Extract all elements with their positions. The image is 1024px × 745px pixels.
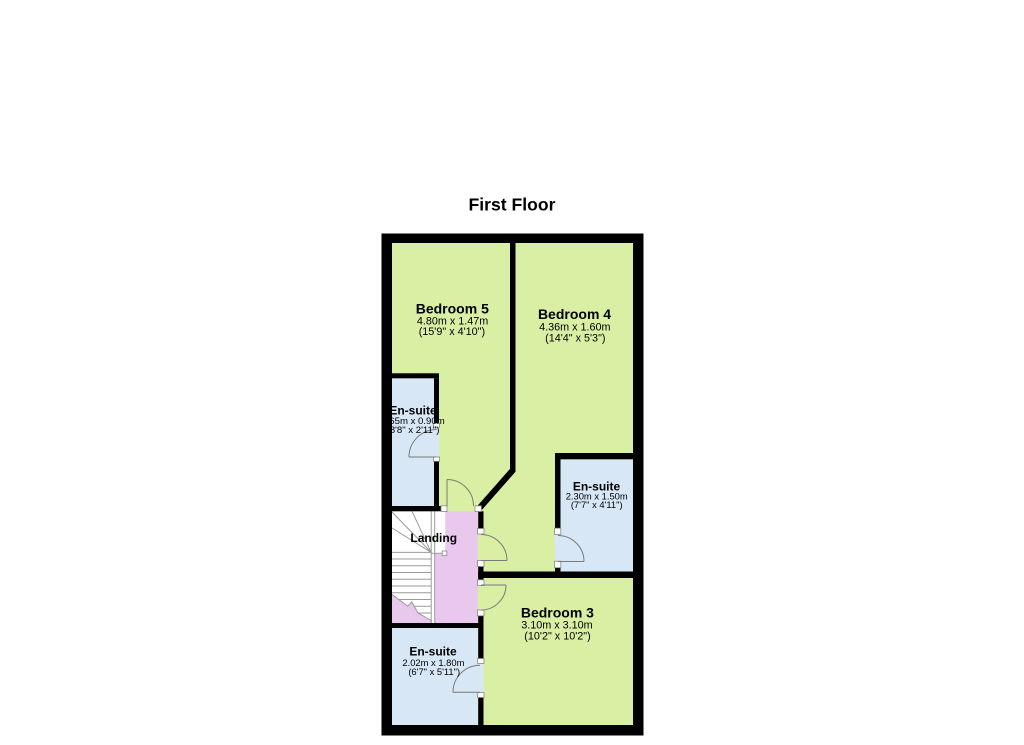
svg-text:(14'4" x 5'3"): (14'4" x 5'3") [545, 333, 605, 345]
svg-text:(15'9" x 4'10"): (15'9" x 4'10") [419, 326, 485, 338]
svg-text:(10'2" x 10'2"): (10'2" x 10'2") [524, 631, 590, 643]
svg-text:Landing: Landing [410, 531, 457, 545]
svg-text:4.36m x 1.60m: 4.36m x 1.60m [539, 321, 610, 333]
svg-text:First Floor: First Floor [469, 194, 556, 214]
svg-text:(6'7" x 5'11"): (6'7" x 5'11") [408, 666, 460, 677]
svg-text:Bedroom 5: Bedroom 5 [416, 301, 489, 317]
svg-text:(8'8" x 2'11"): (8'8" x 2'11") [387, 425, 440, 436]
svg-text:Bedroom 4: Bedroom 4 [538, 306, 611, 322]
svg-text:3.10m x 3.10m: 3.10m x 3.10m [521, 619, 592, 631]
svg-text:Bedroom 3: Bedroom 3 [521, 605, 594, 621]
svg-text:(7'7" x 4'11"): (7'7" x 4'11") [571, 499, 623, 510]
